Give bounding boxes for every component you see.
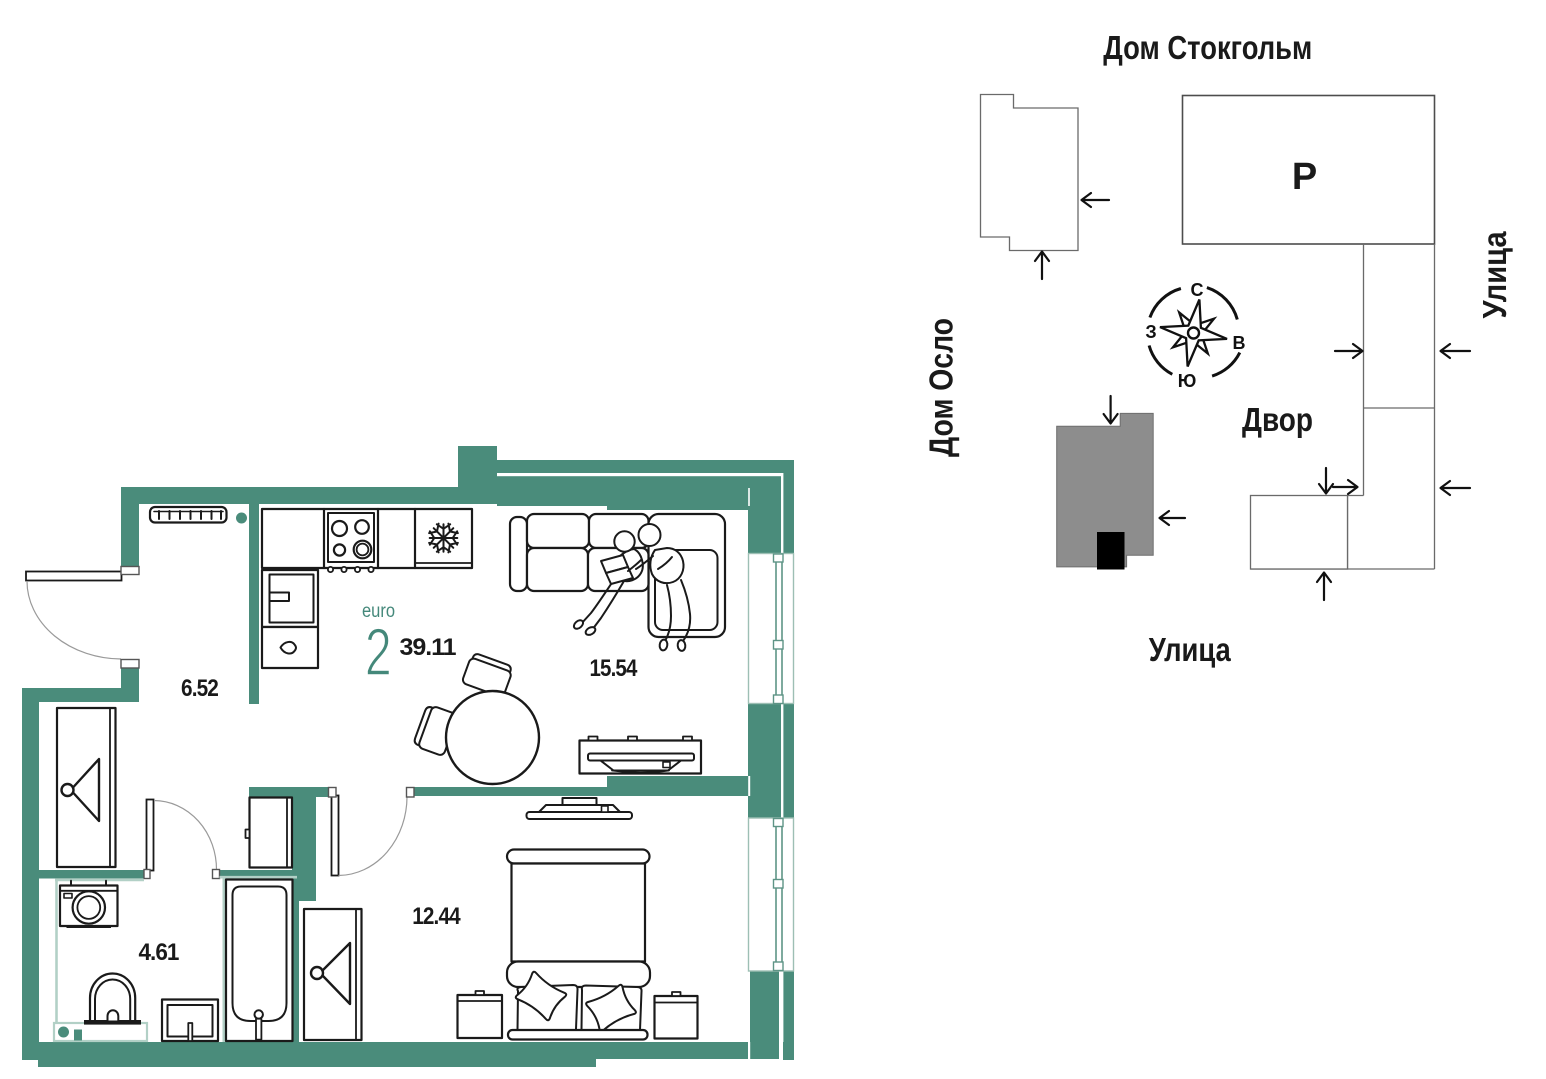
svg-text:В: В (1233, 333, 1246, 353)
svg-text:Ю: Ю (1178, 371, 1197, 391)
svg-text:Улица: Улица (1149, 631, 1232, 668)
svg-text:Улица: Улица (1476, 231, 1513, 319)
svg-text:Р: Р (1292, 156, 1317, 198)
svg-text:6.52: 6.52 (181, 675, 219, 702)
svg-text:12.44: 12.44 (412, 903, 461, 930)
svg-text:Двор: Двор (1242, 401, 1313, 438)
svg-text:2: 2 (365, 615, 391, 690)
svg-text:Дом Стокгольм: Дом Стокгольм (1103, 29, 1312, 66)
svg-text:4.61: 4.61 (139, 939, 180, 966)
svg-text:З: З (1145, 322, 1156, 342)
svg-text:15.54: 15.54 (590, 655, 638, 682)
svg-text:39.11: 39.11 (400, 634, 457, 661)
svg-text:С: С (1191, 280, 1204, 300)
svg-text:Дом Осло: Дом Осло (923, 318, 960, 457)
